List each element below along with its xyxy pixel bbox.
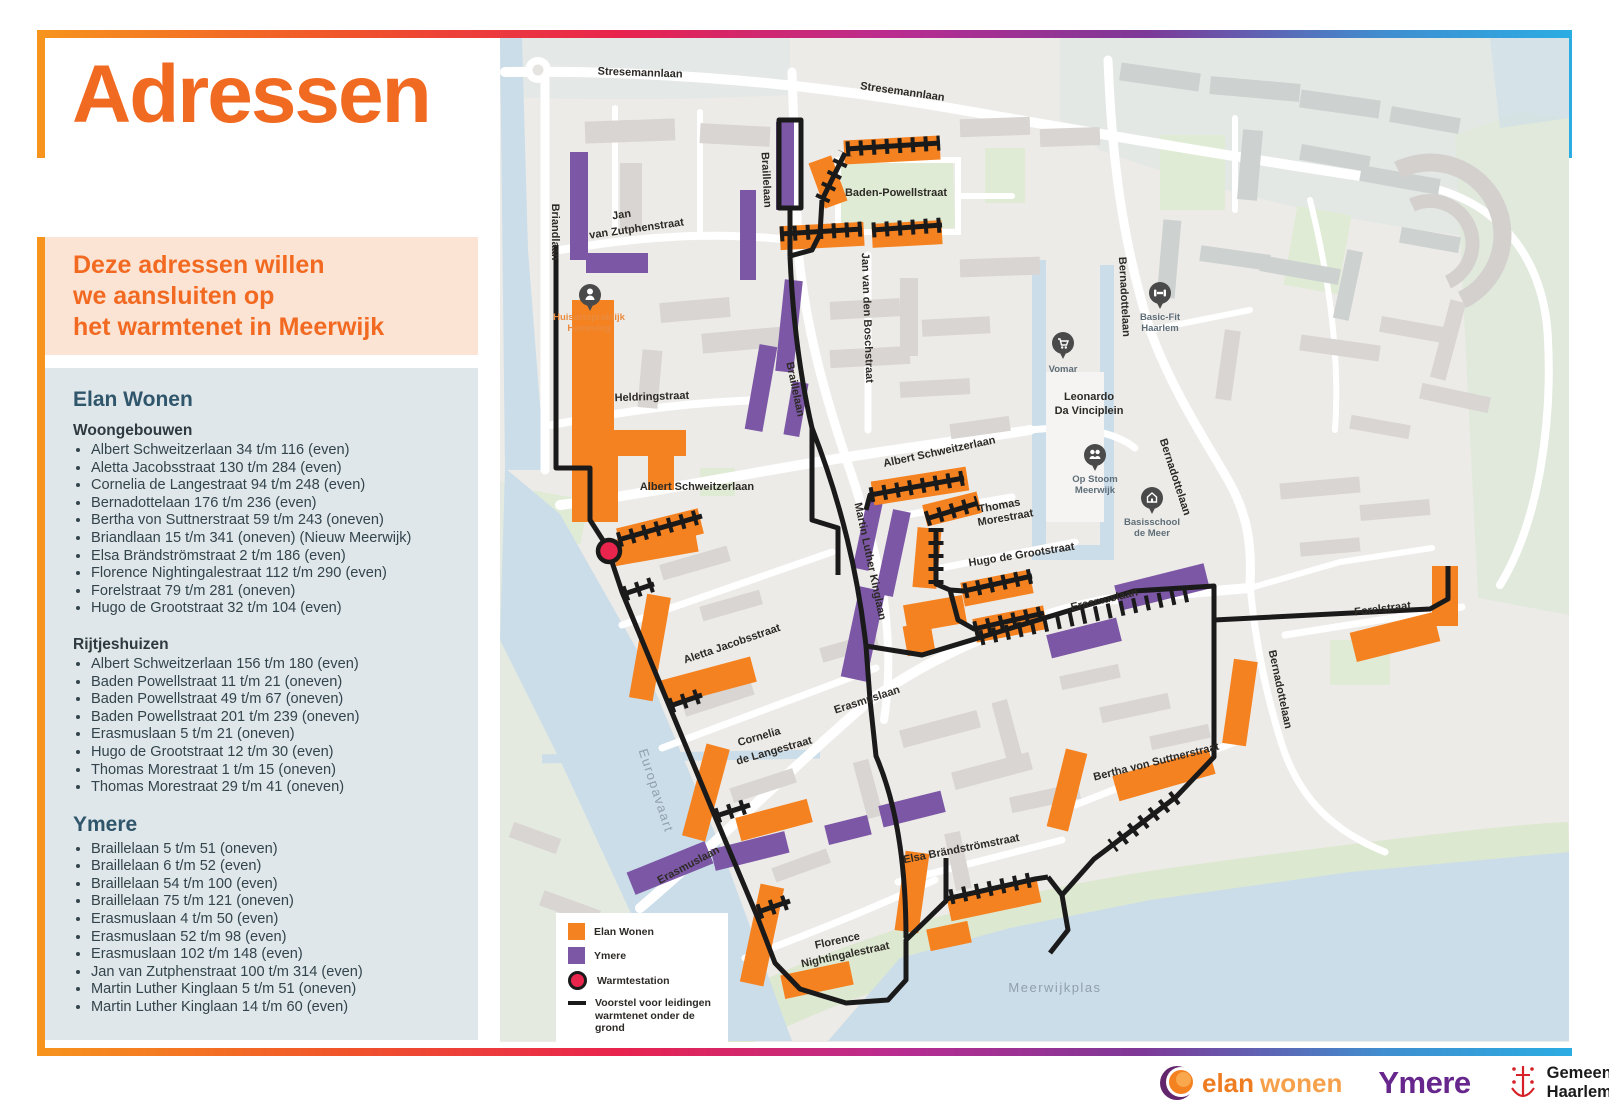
address-item: Baden Powellstraat 49 t/m 67 (oneven): [91, 691, 478, 709]
elan-logo-text: wonen: [1260, 1068, 1342, 1099]
address-item: Hugo de Grootstraat 12 t/m 30 (even): [91, 744, 478, 762]
list-woongebouwen: Albert Schweitzerlaan 34 t/m 116 (even)A…: [73, 442, 478, 618]
legend-item-leidingen: Voorstel voor leidingen warmtenet onder …: [568, 997, 718, 1035]
label-woongebouwen: Woongebouwen: [73, 422, 478, 440]
legend-label: Ymere: [594, 950, 626, 962]
address-item: Bernadottelaan 176 t/m 236 (even): [91, 495, 478, 513]
legend-item-elan: Elan Wonen: [568, 923, 718, 940]
address-item: Braillelaan 6 t/m 52 (even): [91, 858, 478, 876]
address-item: Braillelaan 75 t/m 121 (oneven): [91, 893, 478, 911]
intro-line: we aansluiten op: [73, 281, 384, 312]
legend-item-ymere: Ymere: [568, 947, 718, 964]
address-item: Elsa Brändströmstraat 2 t/m 186 (even): [91, 548, 478, 566]
list-ymere: Braillelaan 5 t/m 51 (oneven)Braillelaan…: [73, 841, 478, 1017]
address-item: Braillelaan 5 t/m 51 (oneven): [91, 841, 478, 859]
address-item: Erasmuslaan 102 t/m 148 (even): [91, 946, 478, 964]
intro-text: Deze adressen willen we aansluiten op he…: [73, 250, 384, 343]
address-item: Thomas Morestraat 29 t/m 41 (oneven): [91, 779, 478, 797]
address-item: Bertha von Suttnerstraat 59 t/m 243 (one…: [91, 512, 478, 530]
page-title: Adressen: [72, 48, 430, 142]
haarlem-crest-icon: [1507, 1062, 1539, 1104]
gemeente-haarlem-logo: Gemeente Haarlem: [1507, 1062, 1609, 1104]
address-item: Aletta Jacobsstraat 130 t/m 284 (even): [91, 460, 478, 478]
address-item: Briandlaan 15 t/m 341 (oneven) (Nieuw Me…: [91, 530, 478, 548]
poi-label-vomar: Vomar: [1049, 364, 1078, 375]
poi-label-huisartspraktijk: Hamming: [567, 323, 610, 334]
intro-box: Deze adressen willen we aansluiten op he…: [45, 237, 478, 355]
label-rijtjeshuizen: Rijtjeshuizen: [73, 636, 478, 654]
poi-label-basisschool: de Meer: [1134, 528, 1170, 539]
water-label-meerwijkplas: Meerwijkplas: [1008, 980, 1101, 995]
street-label-briandlaan: Briandlaan: [549, 204, 561, 261]
intro-line: Deze adressen willen: [73, 250, 384, 281]
ymere-swatch: [568, 947, 585, 964]
poi-label-basicfit: Haarlem: [1141, 323, 1179, 334]
warmtestation-marker: [598, 540, 620, 562]
address-item: Albert Schweitzerlaan 34 t/m 116 (even): [91, 442, 478, 460]
legend-label-line: warmtenet onder de grond: [595, 1010, 695, 1035]
address-item: Erasmuslaan 5 t/m 21 (oneven): [91, 726, 478, 744]
elan-swatch: [568, 923, 585, 940]
heading-elan-wonen: Elan Wonen: [73, 388, 478, 412]
address-item: Forelstraat 79 t/m 281 (oneven): [91, 583, 478, 601]
legend-label: Warmtestation: [597, 975, 670, 987]
address-item: Martin Luther Kinglaan 5 t/m 51 (oneven): [91, 981, 478, 999]
legend-label: Voorstel voor leidingen warmtenet onder …: [595, 997, 718, 1035]
poi-label-basisschool: Basisschool: [1124, 517, 1180, 528]
sidebar-accent-bar: [37, 237, 45, 1048]
address-item: Erasmuslaan 52 t/m 98 (even): [91, 929, 478, 947]
roundabout: [525, 57, 551, 83]
street-label-baden-powellstraat: Baden-Powellstraat: [845, 187, 947, 199]
heading-ymere: Ymere: [73, 813, 478, 837]
elan-wonen-icon: [1160, 1066, 1194, 1100]
poi-label-opstoom: Meerwijk: [1075, 485, 1116, 496]
address-item: Albert Schweitzerlaan 156 t/m 180 (even): [91, 656, 478, 674]
pipeline-swatch: [568, 1001, 586, 1005]
intro-line: het warmtenet in Meerwijk: [73, 312, 384, 343]
address-item: Braillelaan 54 t/m 100 (even): [91, 876, 478, 894]
elan-wonen-logo: elan wonen: [1160, 1066, 1342, 1100]
footer-logos: elan wonen Ymere Gemeente Haarlem: [1160, 1062, 1609, 1104]
legend-label-line: Voorstel voor leidingen: [595, 997, 711, 1009]
list-rijtjeshuizen: Albert Schweitzerlaan 156 t/m 180 (even)…: [73, 656, 478, 797]
address-item: Martin Luther Kinglaan 14 t/m 60 (even): [91, 999, 478, 1017]
address-item: Thomas Morestraat 1 t/m 15 (oneven): [91, 762, 478, 780]
poi-label-opstoom: Op Stoom: [1072, 474, 1117, 485]
poi-label-huisartspraktijk: Huisartspraktijk: [553, 312, 626, 323]
gemeente-text: Gemeente: [1547, 1064, 1609, 1083]
address-item: Erasmuslaan 4 t/m 50 (even): [91, 911, 478, 929]
ymere-logo: Ymere: [1378, 1065, 1470, 1101]
address-item: Florence Nightingalestraat 112 t/m 290 (…: [91, 565, 478, 583]
address-item: Jan van Zutphenstraat 100 t/m 314 (even): [91, 964, 478, 982]
top-gradient-bar: [37, 30, 1572, 38]
place-label-leonardo-da-vinciplein: Leonardo: [1064, 391, 1114, 403]
address-item: Hugo de Grootstraat 32 t/m 104 (even): [91, 600, 478, 618]
legend-label: Elan Wonen: [594, 926, 654, 938]
place-label-leonardo-da-vinciplein: Da Vinciplein: [1055, 405, 1124, 417]
address-item: Baden Powellstraat 201 t/m 239 (oneven): [91, 709, 478, 727]
frame-left-cap: [37, 30, 45, 158]
legend-item-warmtestation: Warmtestation: [568, 971, 718, 990]
poi-label-basicfit: Basic-Fit: [1140, 312, 1181, 323]
gemeente-text: Haarlem: [1547, 1083, 1609, 1102]
address-item: Cornelia de Langestraat 94 t/m 248 (even…: [91, 477, 478, 495]
map-legend: Elan Wonen Ymere Warmtestation Voorstel …: [556, 913, 728, 1044]
warmtestation-swatch: [568, 971, 587, 990]
street-label-albert-schweitzerlaan-1: Albert Schweitzerlaan: [640, 481, 755, 493]
bottom-gradient-bar: [37, 1048, 1572, 1056]
meerwijk-map: Stresemannlaan Stresemannlaan Briandlaan…: [500, 38, 1569, 1042]
address-list-panel: Elan Wonen Woongebouwen Albert Schweitze…: [45, 368, 478, 1040]
poster: Adressen Warmtenet Meerwijk Deze adresse…: [0, 0, 1609, 1119]
address-item: Baden Powellstraat 11 t/m 21 (oneven): [91, 674, 478, 692]
elan-logo-text: elan: [1202, 1068, 1254, 1099]
